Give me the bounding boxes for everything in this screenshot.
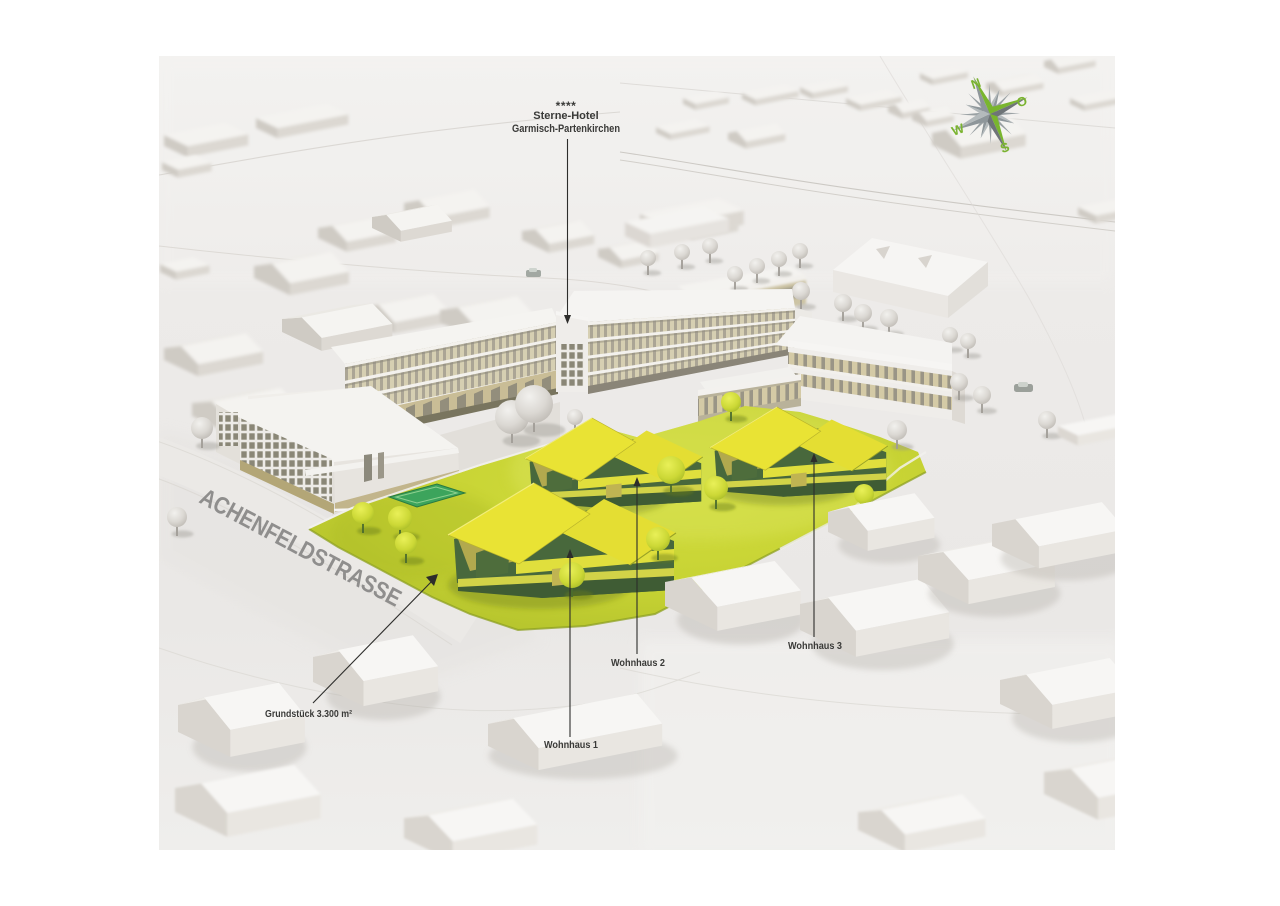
svg-text:Grundstück 3.300 m²: Grundstück 3.300 m² (265, 709, 353, 720)
svg-text:Sterne-Hotel: Sterne-Hotel (533, 110, 598, 122)
svg-text:Wohnhaus 2: Wohnhaus 2 (611, 658, 665, 669)
svg-text:Garmisch-Partenkirchen: Garmisch-Partenkirchen (512, 123, 620, 135)
svg-text:Wohnhaus 3: Wohnhaus 3 (788, 641, 842, 652)
svg-text:Wohnhaus 1: Wohnhaus 1 (544, 740, 598, 751)
